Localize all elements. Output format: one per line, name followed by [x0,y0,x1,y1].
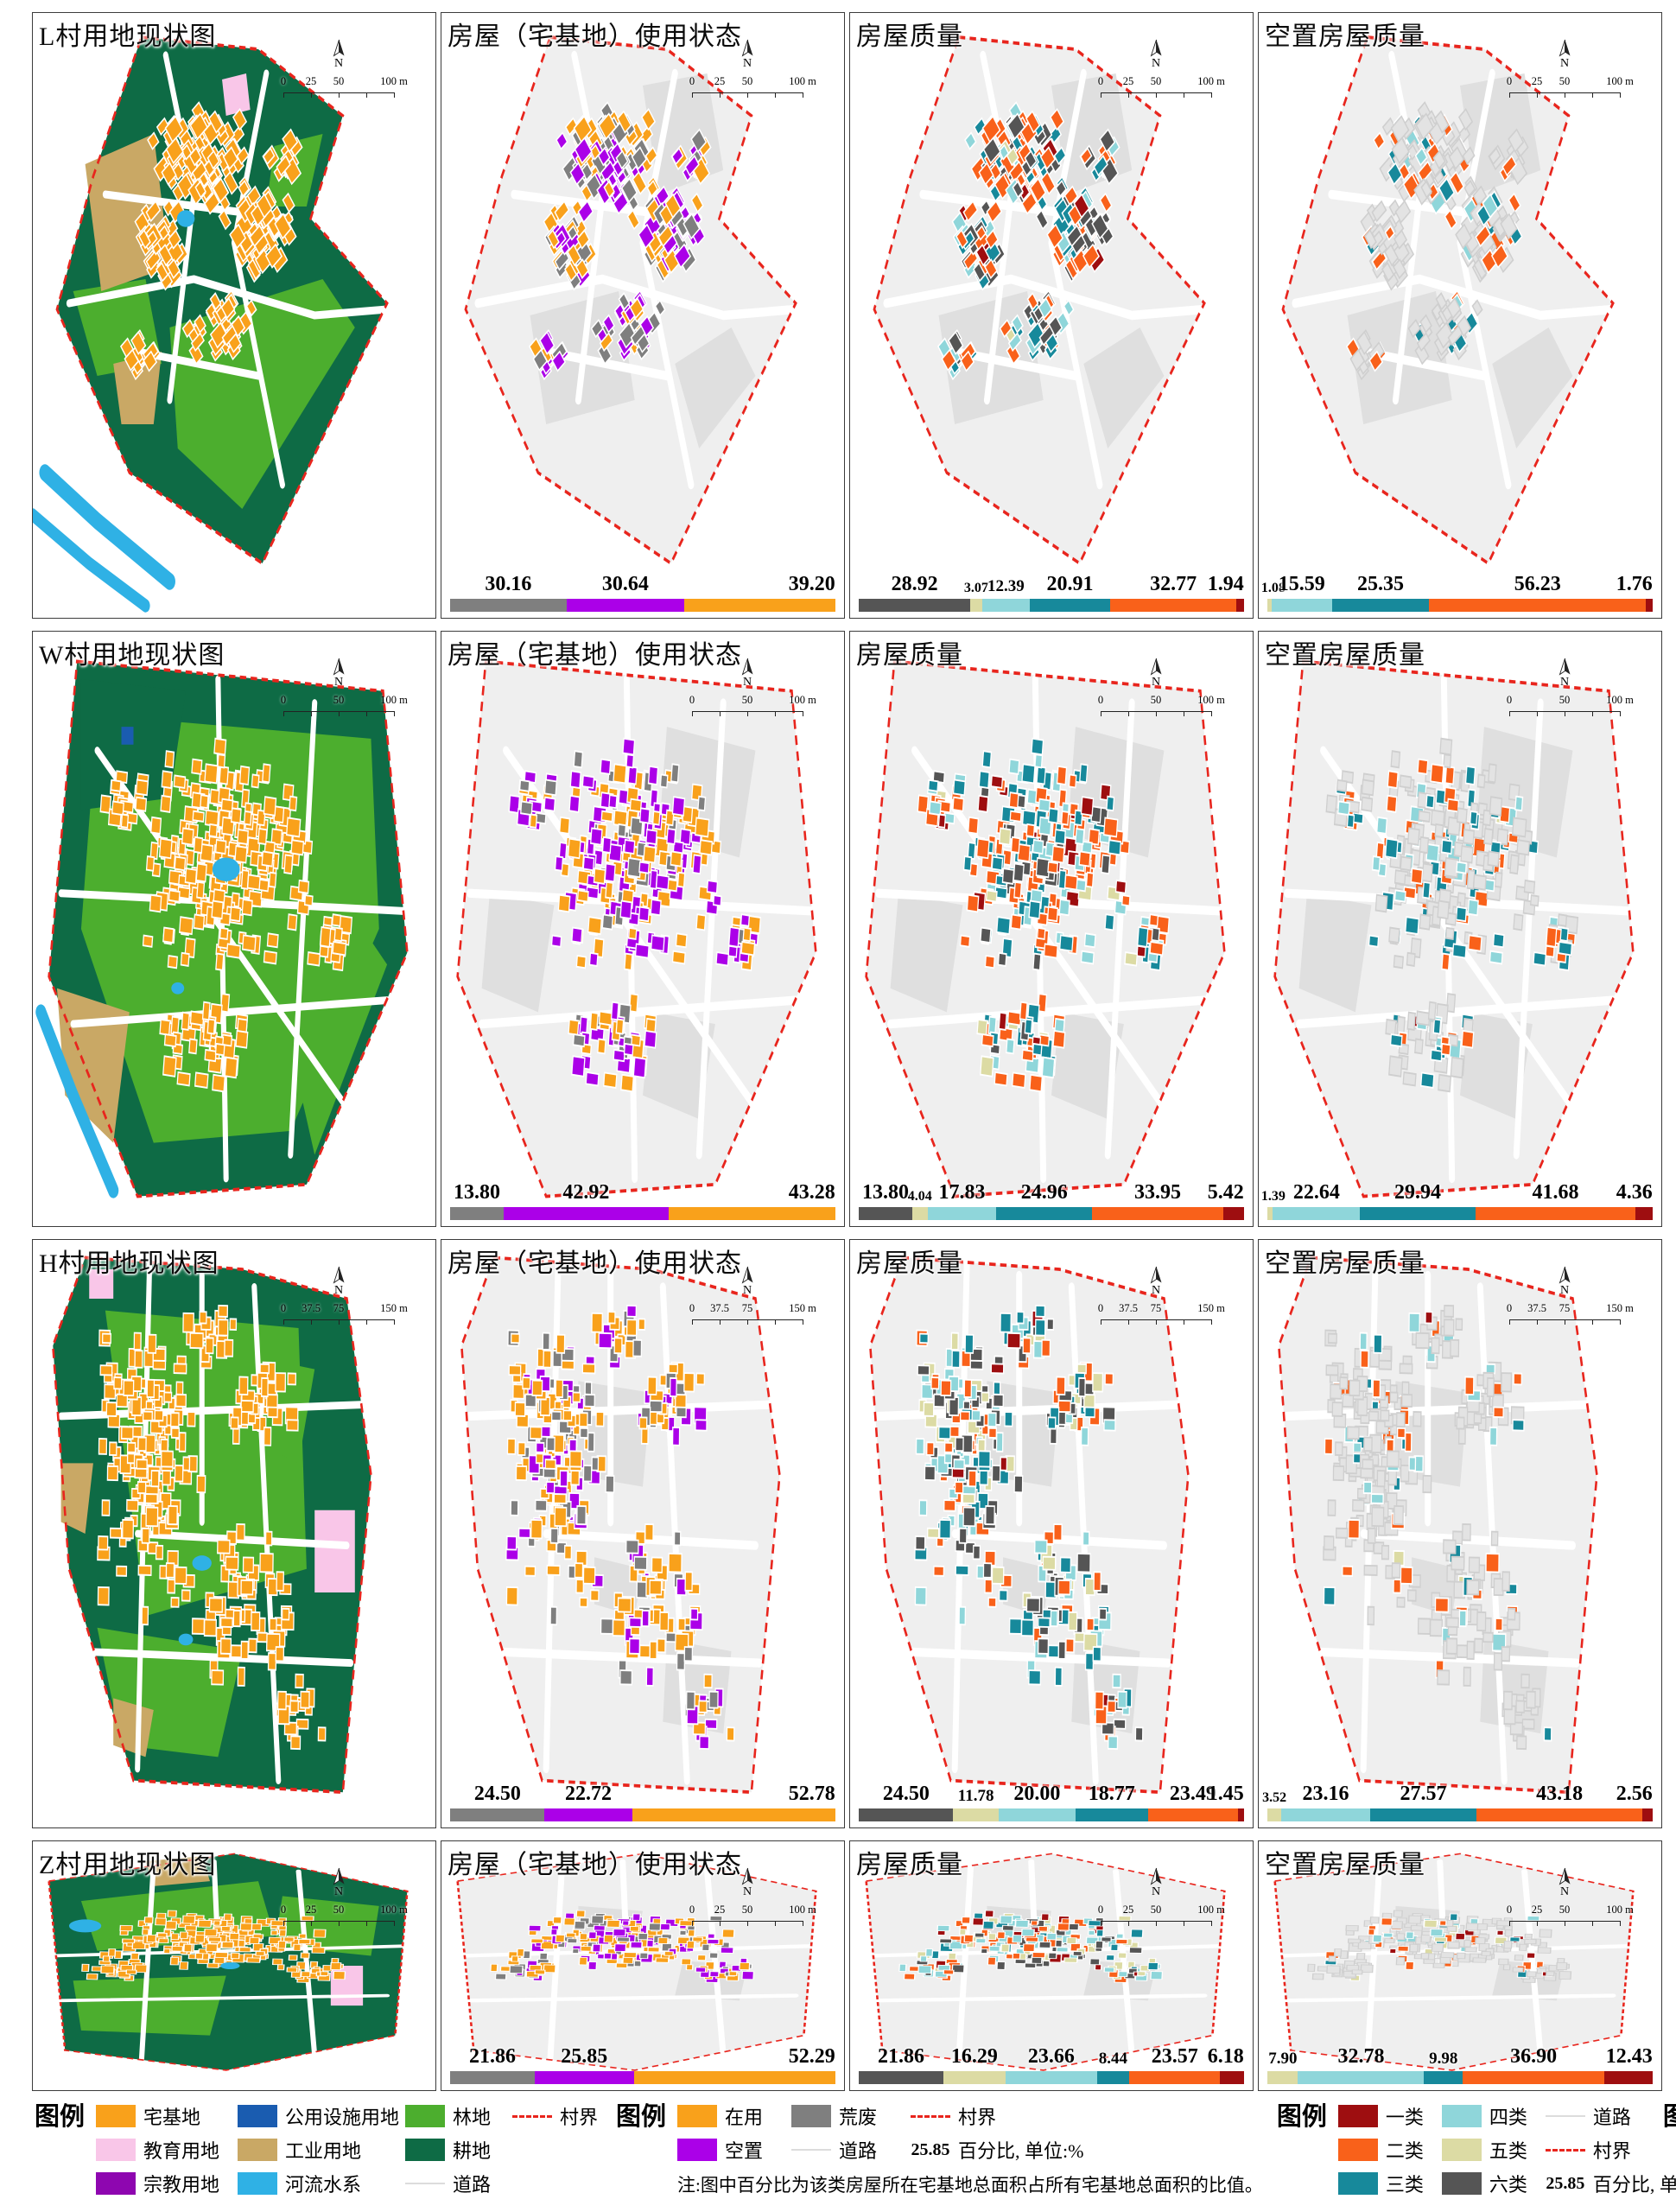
bar-value-label: 42.92 [562,1181,609,1205]
scale-label: 0 [1507,1302,1512,1315]
percentage-bar: 1.0815.5925.3556.231.76 [1267,599,1653,612]
bar-value-label: 41.68 [1533,1181,1579,1205]
bar-segment-在用 [669,1207,835,1220]
bar-value-label: 4.36 [1616,1181,1653,1205]
north-arrow-icon [1558,1867,1572,1886]
panel-L-vacant: 空置房屋质量N02550100 m1.0815.5925.3556.231.76 [1258,12,1662,619]
bar-segment-四类 [1273,1207,1360,1220]
north-label: N [334,59,343,69]
legend-label: 村界 [1593,2136,1631,2164]
scale-tick [775,92,776,98]
legend-item: 工业用地 [238,2137,395,2163]
north-arrow-icon [332,1266,346,1285]
scale-label: 100 m [789,1904,816,1916]
legend-swatch [1442,2105,1482,2127]
legend-block-1: 图例宅基地公用设施用地林地村界教育用地工业用地耕地宗教用地河流水系道路 [35,2103,602,2196]
map-nav: N050100 m [1499,658,1630,721]
bar-segment-三类 [996,1207,1092,1220]
scale-label: 0 [689,694,695,707]
legend-item: 四类 [1442,2103,1535,2129]
bar-segment-五类 [943,2071,1006,2084]
bar-value-label: 23.16 [1303,1783,1349,1806]
legend-item: 25.85百分比, 单位:% [911,2137,1006,2163]
bar-segment-一类 [1223,1207,1244,1220]
scale-tick [1620,92,1621,98]
bar-segment-三类 [1097,2071,1130,2084]
legend-swatch [405,2105,445,2127]
bar-value-label: 33.95 [1134,1181,1181,1205]
scale-tick [1509,1921,1510,1926]
panel-W-vacant: 空置房屋质量N050100 m1.3922.6429.9441.684.36 [1258,631,1662,1227]
bar-value-label: 1.94 [1208,573,1244,596]
legend-swatch [238,2105,277,2127]
scale-tick [394,92,395,98]
bar-segment-在用 [634,2071,835,2084]
bar-value-label: 3.52 [1262,1790,1286,1806]
scale-tick [1156,1319,1157,1325]
scale-tick [1101,92,1101,98]
bar-segments [1267,2071,1653,2084]
scale-label: 37.5 [710,1302,729,1315]
panel-title: 房屋（宅基地）使用状态 [448,1843,742,1881]
panel-H-landuse: H村用地现状图N037.575150 m [32,1239,436,1828]
legend-item: 河流水系 [238,2171,395,2196]
scale-tick [1128,92,1129,98]
scale-tick [1592,1921,1593,1926]
legend-title: 图例 [616,2103,666,2197]
scale-label: 25 [714,75,726,88]
scale-tick [747,1319,748,1325]
bar-value-label: 13.80 [862,1181,909,1205]
panel-W-landuse: W村用地现状图N050100 m [32,631,436,1227]
scale-label: 37.5 [1119,1302,1138,1315]
scale-label: 25 [1532,75,1543,88]
scale-label: 50 [742,1904,753,1916]
scale-label: 50 [333,1904,345,1916]
bar-value-label: 29.94 [1394,1181,1441,1205]
scale-label: 0 [281,694,286,707]
scale-tick [339,1319,340,1325]
bar-value-label: 12.43 [1606,2045,1653,2069]
scale-bar: 050100 m [1101,694,1211,721]
legend-item: 道路 [405,2171,502,2196]
bar-value-label: 22.64 [1293,1181,1340,1205]
scale-label: 50 [742,694,753,707]
bar-segments [859,599,1244,612]
bar-segments [450,1808,835,1821]
legend-title: 图例 [1277,2103,1327,2196]
legend-item: 三类 [1338,2171,1432,2196]
scale-tick [1211,1921,1212,1926]
scale-label: 25 [714,1904,726,1916]
scale-tick [1184,92,1184,98]
bar-segment-三类 [1030,599,1110,612]
north-arrow-icon [1149,1266,1164,1285]
bar-segments [859,1207,1244,1220]
scale-label: 25 [1123,75,1134,88]
bar-segment-荒废 [450,1207,503,1220]
scale-label: 100 m [789,75,816,88]
scale-tick [311,1921,312,1926]
percent-sample: 25.85 [1546,2174,1585,2194]
legend-item: 林地 [405,2103,502,2129]
scale-tick [339,1921,340,1926]
scale-tick [747,92,748,98]
percentage-bar: 24.5011.7820.0018.7723.491.45 [859,1808,1244,1821]
bar-value-label: 24.96 [1021,1181,1068,1205]
bar-segment-一类 [1220,2071,1244,2084]
bar-segment-二类 [1148,1808,1239,1821]
legend-swatch [1338,2139,1378,2161]
legend-swatch [1442,2139,1482,2161]
bar-segments [1267,599,1653,612]
legend-grid: 宅基地公用设施用地林地村界教育用地工业用地耕地宗教用地河流水系道路 [96,2103,602,2196]
north-label: N [743,677,752,688]
bar-segments [450,599,835,612]
legend-block-4: 图例一类四类道路二类五类村界三类六类25.85百分比, 单位:% [1663,2103,1676,2196]
scale-tick [1620,1921,1621,1926]
north-label: N [1152,1286,1160,1296]
legend-label: 六类 [1489,2170,1527,2197]
scale-bar: 050100 m [283,694,394,721]
panel-title: L村用地现状图 [39,15,216,53]
bar-segment-一类 [1238,1808,1243,1821]
scale-tick [1537,711,1538,716]
legend-item: 道路 [1546,2103,1649,2129]
legend-item: 五类 [1442,2137,1535,2163]
scale-tick [1565,1319,1565,1325]
map-canvas [850,13,1253,618]
percentage-bar: 13.8042.9243.28 [450,1207,835,1220]
legend-block-2: 图例在用荒废村界空置道路25.85百分比, 单位:%注:图中百分比为该类房屋所在… [616,2103,1263,2197]
scale-label: 100 m [1606,1904,1634,1916]
bar-segment-二类 [1429,599,1646,612]
north-label: N [1560,59,1569,69]
north-arrow-icon [332,658,346,677]
bar-value-label: 39.20 [789,573,835,596]
scale-tick [1565,92,1565,98]
scale-label: 50 [1559,694,1571,707]
scale-tick [1620,711,1621,716]
legend-item: 一类 [1338,2103,1432,2129]
legend-swatch [1338,2172,1378,2195]
scale-tick [1156,711,1157,716]
legend-item: 村界 [911,2103,1006,2129]
map-nav: N02550100 m [273,1867,404,1931]
legend-label: 村界 [560,2102,598,2130]
bar-segments [1267,1808,1653,1821]
bar-value-label: 1.45 [1208,1783,1244,1806]
north-label: N [334,1286,343,1296]
bar-segment-一类 [1646,599,1653,612]
scale-label: 50 [742,75,753,88]
scale-label: 0 [689,1302,695,1315]
legend-item [512,2137,602,2163]
map-canvas [441,13,844,618]
bar-segment-三类 [1370,1808,1476,1821]
bar-value-label: 25.35 [1357,573,1404,596]
scale-tick [366,1921,367,1926]
map-nav: N037.575150 m [1090,1266,1222,1330]
scale-tick [1509,92,1510,98]
scale-tick [366,711,367,716]
legend-swatch [1442,2172,1482,2195]
bar-value-label: 52.29 [789,2045,835,2069]
legend-label: 宗教用地 [143,2170,219,2197]
bar-segment-四类 [1298,2071,1424,2084]
bar-segment-二类 [1476,1207,1636,1220]
scale-tick [1509,711,1510,716]
scale-tick [1620,1319,1621,1325]
legend-label: 一类 [1386,2102,1424,2130]
bar-value-label: 25.85 [561,2045,607,2069]
bar-value-label: 7.90 [1268,2050,1297,2069]
scale-tick [692,92,693,98]
bar-segment-空置 [504,1207,669,1220]
scale-tick [1101,1319,1101,1325]
scale-tick [720,1319,721,1325]
percentage-bar: 21.8616.2923.668.4423.576.18 [859,2071,1244,2084]
panel-title: 空置房屋质量 [1265,1242,1425,1280]
north-label: N [1560,677,1569,688]
bar-segment-四类 [1272,599,1331,612]
north-label: N [334,677,343,688]
legend-note: 注:图中百分比为该类房屋所在宅基地总面积占所有宅基地总面积的比值。 [677,2171,1263,2197]
scale-bar: 02550100 m [692,1904,803,1931]
scale-tick [1184,1319,1184,1325]
map-grid: L村用地现状图N02550100 m房屋（宅基地）使用状态N02550100 m… [0,0,1676,2091]
legend-bar: 图例宅基地公用设施用地林地村界教育用地工业用地耕地宗教用地河流水系道路图例在用荒… [0,2091,1676,2197]
bar-value-label: 30.16 [485,573,531,596]
legend-swatch [405,2139,445,2161]
scale-tick [1184,711,1184,716]
bar-value-label: 1.39 [1261,1189,1286,1205]
panel-title: 房屋质量 [856,15,963,53]
legend-label: 三类 [1386,2170,1424,2197]
map-nav: N050100 m [273,658,404,721]
scale-tick [394,1319,395,1325]
legend-label: 道路 [1593,2102,1631,2130]
legend-item: 宅基地 [96,2103,227,2129]
panel-Z-landuse: Z村用地现状图N02550100 m [32,1840,436,2091]
percent-sample: 25.85 [911,2140,950,2160]
scale-label: 25 [306,75,317,88]
scale-label: 0 [1098,1302,1103,1315]
bar-value-label: 15.59 [1279,573,1325,596]
scale-tick [283,711,284,716]
scale-label: 150 m [789,1302,816,1315]
panel-Z-usage: 房屋（宅基地）使用状态N02550100 m21.8625.8552.29 [441,1840,845,2091]
legend-swatch [1338,2105,1378,2127]
legend-swatch-empty [512,2172,552,2195]
panel-L-usage: 房屋（宅基地）使用状态N02550100 m30.1630.6439.20 [441,12,845,619]
legend-item: 荒废 [791,2103,900,2129]
bar-segment-空置 [544,1808,632,1821]
scale-label: 100 m [789,694,816,707]
scale-tick [1537,92,1538,98]
map-nav: N037.575150 m [1499,1266,1630,1330]
scale-tick [283,92,284,98]
scale-label: 37.5 [1527,1302,1546,1315]
percentage-bar: 21.8625.8552.29 [450,2071,835,2084]
north-arrow-icon [740,658,755,677]
bar-value-label: 23.57 [1152,2045,1198,2069]
panel-H-usage: 房屋（宅基地）使用状态N037.575150 m24.5022.7252.78 [441,1239,845,1828]
bar-segment-四类 [999,1808,1076,1821]
north-label: N [1152,677,1160,688]
legend-item: 空置 [677,2137,781,2163]
scale-label: 50 [1151,694,1162,707]
bar-value-label: 22.72 [565,1783,612,1806]
scale-tick [692,711,693,716]
legend-swatch [791,2105,831,2127]
bar-value-label: 32.77 [1150,573,1197,596]
scale-tick [339,711,340,716]
road-swatch [1546,2115,1585,2117]
bar-value-label: 8.44 [1099,2050,1127,2069]
percentage-bar: 1.3922.6429.9441.684.36 [1267,1207,1653,1220]
scale-tick [1211,92,1212,98]
scale-label: 0 [1098,1904,1103,1916]
north-arrow-icon [1149,658,1164,677]
legend-grid: 在用荒废村界空置道路25.85百分比, 单位:% [677,2103,1263,2163]
legend-swatch-empty [512,2139,552,2161]
scale-label: 75 [1559,1302,1571,1315]
scale-bar: 02550100 m [1509,75,1620,103]
panel-W-usage: 房屋（宅基地）使用状态N050100 m13.8042.9243.28 [441,631,845,1227]
scale-label: 75 [1151,1302,1162,1315]
north-arrow-icon [740,1867,755,1886]
panel-title: W村用地现状图 [39,633,225,671]
legend-item: 村界 [512,2103,602,2129]
bar-segment-二类 [1463,2071,1604,2084]
north-label: N [1152,1887,1160,1897]
bar-value-label: 23.66 [1028,2045,1075,2069]
bar-value-label: 56.23 [1514,573,1561,596]
north-arrow-icon [740,1266,755,1285]
percentage-bar: 13.804.0417.8324.9633.955.42 [859,1207,1244,1220]
legend-label: 道路 [839,2136,877,2164]
north-arrow-icon [1149,1867,1164,1886]
bar-segment-三类 [1360,1207,1475,1220]
bar-value-label: 27.57 [1400,1783,1447,1806]
legend-item: 宗教用地 [96,2171,227,2196]
scale-label: 50 [1151,1904,1162,1916]
village-boundary-swatch [512,2115,552,2118]
bar-segments [859,1808,1244,1821]
scale-tick [747,1921,748,1926]
bar-value-label: 9.98 [1429,2050,1457,2069]
scale-tick [1537,1921,1538,1926]
scale-label: 150 m [380,1302,408,1315]
bar-segment-四类 [982,599,1030,612]
legend-block-3: 图例一类四类道路二类五类村界三类六类25.85百分比, 单位:% [1277,2103,1649,2196]
legend-label: 二类 [1386,2136,1424,2164]
bar-value-label: 21.86 [469,2045,516,2069]
scale-label: 100 m [380,75,408,88]
scale-label: 100 m [1197,1904,1225,1916]
scale-tick [803,1921,803,1926]
percentage-bar: 28.923.0712.3920.9132.771.94 [859,599,1244,612]
scale-label: 37.5 [302,1302,321,1315]
bar-segment-荒废 [450,599,566,612]
bar-value-label: 20.00 [1013,1783,1060,1806]
legend-label: 荒废 [839,2102,877,2130]
map-nav: N02550100 m [1499,1867,1630,1931]
legend-label: 百分比, 单位:% [958,2136,1083,2164]
bar-segment-六类 [859,1207,911,1220]
scale-label: 0 [1507,75,1512,88]
panel-title: 空置房屋质量 [1265,15,1425,53]
scale-label: 100 m [1197,694,1225,707]
scale-bar: 02550100 m [1509,1904,1620,1931]
scale-tick [1156,1921,1157,1926]
scale-tick [720,711,721,716]
scale-tick [1537,1319,1538,1325]
panel-title: 空置房屋质量 [1265,633,1425,671]
scale-label: 0 [1098,694,1103,707]
bar-segment-二类 [1110,599,1236,612]
bar-value-label: 20.91 [1047,573,1094,596]
scale-tick [692,1921,693,1926]
bar-segment-五类 [970,599,982,612]
legend-label: 工业用地 [285,2136,361,2164]
panel-H-vacant: 空置房屋质量N037.575150 m3.5223.1627.5743.182.… [1258,1239,1662,1828]
map-nav: N02550100 m [1499,39,1630,103]
bar-segments [450,1207,835,1220]
scale-label: 50 [1559,1904,1571,1916]
legend-item: 道路 [791,2137,900,2163]
scale-tick [283,1921,284,1926]
percentage-bar: 30.1630.6439.20 [450,599,835,612]
north-label: N [1560,1286,1569,1296]
bar-value-label: 28.92 [892,573,938,596]
map-nav: N037.575150 m [273,1266,404,1330]
scale-tick [394,1921,395,1926]
percentage-bar: 7.9032.789.9836.9012.43 [1267,2071,1653,2084]
scale-label: 0 [281,1904,286,1916]
scale-tick [1509,1319,1510,1325]
bar-segments [1267,1207,1653,1220]
north-arrow-icon [740,39,755,58]
bar-segment-在用 [684,599,835,612]
north-label: N [743,1887,752,1897]
scale-tick [366,1319,367,1325]
scale-tick [1565,711,1565,716]
bar-segment-六类 [859,1808,953,1821]
legend-label: 宅基地 [143,2102,200,2130]
scale-tick [720,92,721,98]
scale-label: 25 [1123,1904,1134,1916]
bar-segment-一类 [1604,2071,1652,2084]
map-canvas [1259,13,1661,618]
legend-label: 河流水系 [285,2170,361,2197]
scale-label: 150 m [1606,1302,1634,1315]
panel-title: 房屋（宅基地）使用状态 [448,1242,742,1280]
legend-body: 一类四类道路二类五类村界三类六类25.85百分比, 单位:% [1338,2103,1649,2196]
scale-bar: 02550100 m [1101,75,1211,103]
bar-segment-四类 [1006,2071,1096,2084]
bar-value-label: 2.56 [1616,1783,1653,1806]
bar-value-label: 30.64 [602,573,649,596]
bar-segment-六类 [859,2071,943,2084]
bar-value-label: 4.04 [908,1189,932,1205]
scale-label: 50 [1151,75,1162,88]
legend-label: 公用设施用地 [285,2102,399,2130]
bar-segment-一类 [1236,599,1244,612]
legend-label: 四类 [1489,2102,1527,2130]
scale-tick [775,1319,776,1325]
